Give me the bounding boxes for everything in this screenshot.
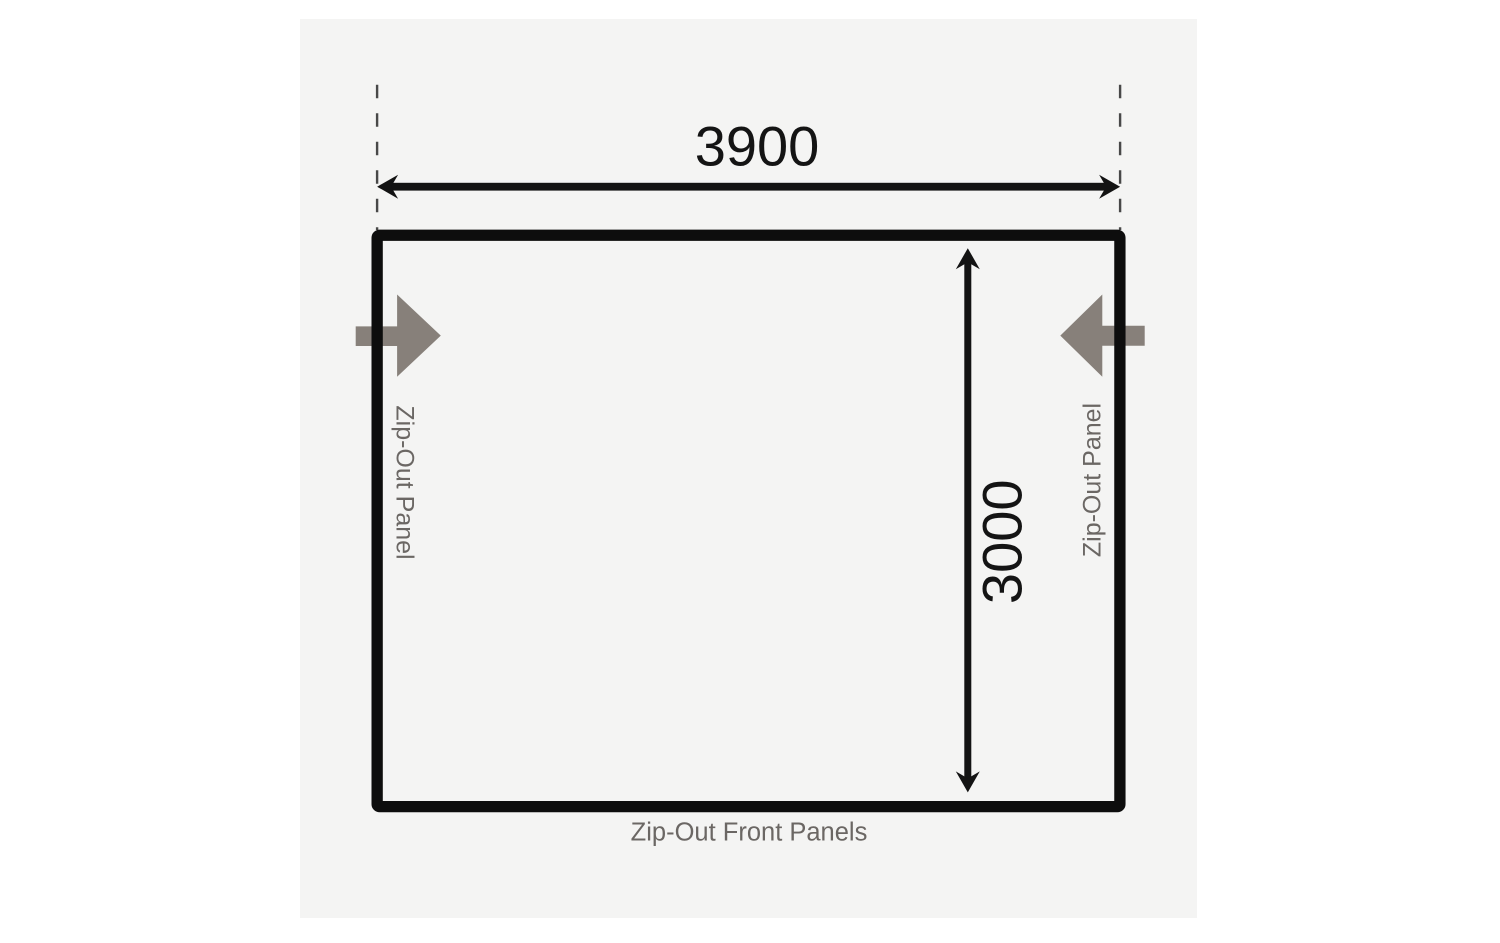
svg-text:Zip-Out Panel: Zip-Out Panel	[391, 405, 419, 559]
svg-text:3000: 3000	[971, 480, 1034, 605]
svg-text:Zip-Out Front Panels: Zip-Out Front Panels	[631, 819, 868, 847]
svg-text:Zip-Out Panel: Zip-Out Panel	[1079, 403, 1107, 557]
svg-text:3900: 3900	[695, 114, 820, 177]
